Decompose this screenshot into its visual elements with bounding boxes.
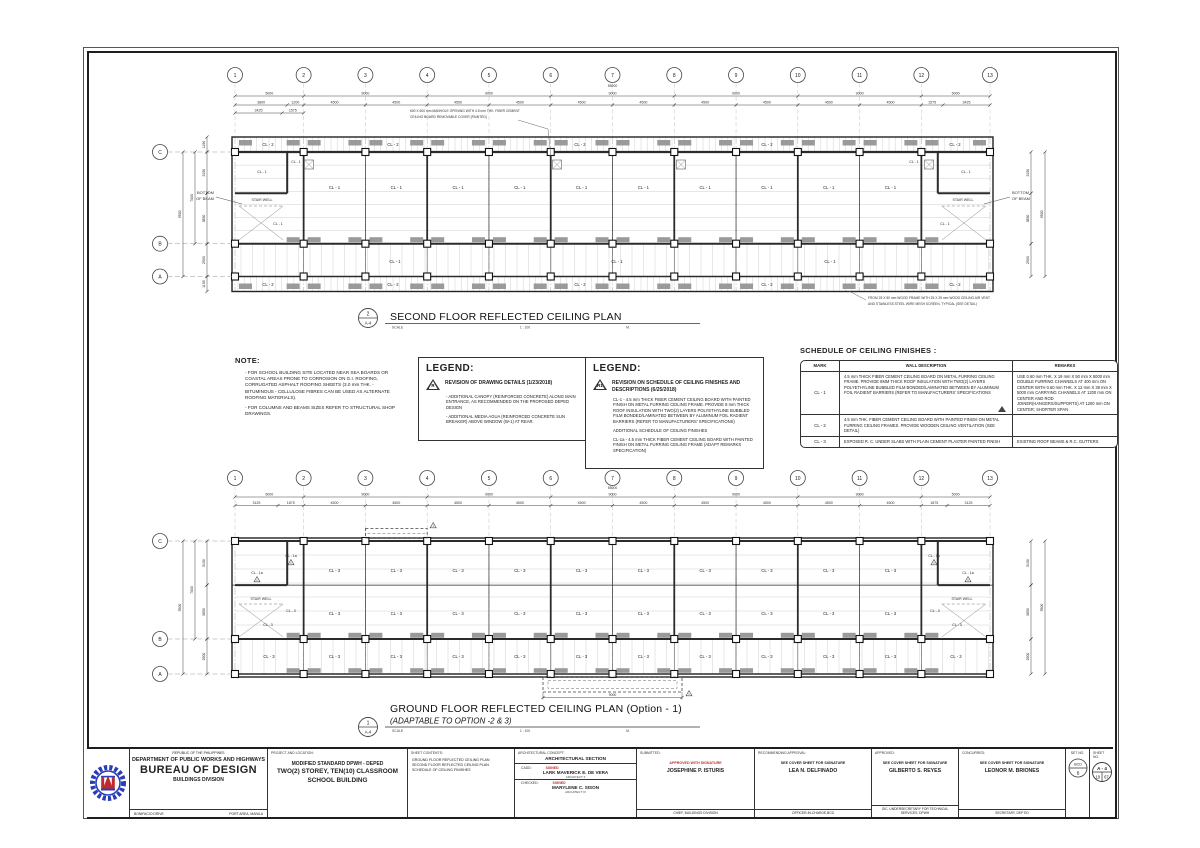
svg-text:3850: 3850 <box>1026 608 1030 616</box>
approved-name: GILBERTO S. REYES <box>872 768 958 774</box>
dpwh-logo-cell <box>87 749 130 817</box>
svg-text:1 : 100: 1 : 100 <box>520 729 530 733</box>
svg-text:BOTTOM: BOTTOM <box>1012 190 1029 195</box>
svg-text:CL - 3: CL - 3 <box>329 568 341 573</box>
svg-text:2500: 2500 <box>202 653 206 661</box>
drawing-sheet: 5500050009000900090009000900050003800120… <box>0 0 1200 848</box>
svg-text:CL - 1: CL - 1 <box>961 170 970 174</box>
legend2-heading: REVISION ON SCHEDULE OF CEILING FINISHES… <box>612 379 756 393</box>
svg-text:4500: 4500 <box>763 100 771 104</box>
svg-text:1150: 1150 <box>202 141 206 149</box>
republic-label: REPUBLIC OF THE PHILIPPINES <box>130 751 267 755</box>
project-line2: TWO(2) STOREY, TEN(10) CLASSROOM <box>268 768 407 775</box>
division-name: BUILDINGS DIVISION <box>130 777 267 783</box>
svg-text:12: 12 <box>919 73 925 79</box>
svg-text:CL - 1: CL - 1 <box>611 259 623 264</box>
svg-text:C: C <box>158 539 162 545</box>
svg-text:CL - 3: CL - 3 <box>700 654 712 659</box>
svg-text:9000: 9000 <box>732 492 740 496</box>
svg-text:CL - 2: CL - 2 <box>949 142 961 147</box>
svg-text:7: 7 <box>611 73 614 79</box>
approved-label: APPROVED: <box>872 749 958 755</box>
svg-text:5: 5 <box>488 476 491 482</box>
svg-text:2: 2 <box>302 476 305 482</box>
svg-text:CL - 1: CL - 1 <box>389 259 401 264</box>
svg-text:BOTTOM: BOTTOM <box>197 190 214 195</box>
svg-text:13: 13 <box>987 476 993 482</box>
sheet-no-cell: SHEET NO. A - 4 19 67 <box>1090 749 1113 817</box>
svg-text:CL - 3: CL - 3 <box>761 611 773 616</box>
department-name: DEPARTMENT OF PUBLIC WORKS AND HIGHWAYS <box>130 757 267 763</box>
list-item: CL-1 - 4.5 mm THICK FIBER CEMENT CEILING… <box>613 397 756 424</box>
svg-text:3125: 3125 <box>252 501 260 505</box>
svg-text:9500: 9500 <box>1040 210 1044 218</box>
svg-text:CL - 3: CL - 3 <box>391 611 403 616</box>
svg-text:1: 1 <box>234 476 237 482</box>
svg-text:CL - 3: CL - 3 <box>761 654 773 659</box>
svg-text:A-4: A-4 <box>365 730 372 735</box>
svg-text:7000: 7000 <box>190 194 194 202</box>
svg-text:B: B <box>1076 770 1079 775</box>
svg-text:CL - 3: CL - 3 <box>950 654 962 659</box>
svg-text:CL - 3: CL - 3 <box>885 654 897 659</box>
svg-text:4500: 4500 <box>454 100 462 104</box>
svg-text:4500: 4500 <box>886 100 894 104</box>
svg-text:9500: 9500 <box>178 210 182 218</box>
svg-text:12: 12 <box>919 476 925 482</box>
submitted-label: SUBMITTED: <box>637 749 754 755</box>
svg-text:8: 8 <box>673 476 676 482</box>
svg-text:9000: 9000 <box>609 492 617 496</box>
title-block: REPUBLIC OF THE PHILIPPINES DEPARTMENT O… <box>87 747 1113 817</box>
svg-text:4500: 4500 <box>701 501 709 505</box>
svg-text:CL - 3: CL - 3 <box>930 609 939 613</box>
svg-text:CL - 3: CL - 3 <box>700 568 712 573</box>
svg-text:CL - 3: CL - 3 <box>700 611 712 616</box>
revision-triangle-icon: R <box>426 379 440 390</box>
legend1-heading: REVISION OF DRAWING DETAILS (1/23/2018) <box>445 379 552 387</box>
svg-text:67: 67 <box>1104 774 1109 779</box>
list-item: - ADDITIONAL MEDIA AGUA (REINFORCED CONC… <box>446 414 578 425</box>
svg-text:55000: 55000 <box>608 486 618 490</box>
ceiling-finish-schedule: SCHEDULE OF CEILING FINISHES : MARKWALL … <box>800 346 1118 448</box>
svg-text:600 X 600 mm MANHOLE OPENING W: 600 X 600 mm MANHOLE OPENING WITH 4.5 mm… <box>410 109 520 113</box>
svg-text:4500: 4500 <box>886 501 894 505</box>
svg-text:CL - 3: CL - 3 <box>823 654 835 659</box>
svg-text:A-4: A-4 <box>365 321 372 326</box>
svg-text:11: 11 <box>857 476 862 482</box>
svg-text:M.: M. <box>626 729 630 733</box>
svg-text:CL - 3: CL - 3 <box>514 611 526 616</box>
svg-text:2500: 2500 <box>1026 256 1030 264</box>
svg-text:9500: 9500 <box>1040 604 1044 612</box>
svg-text:4500: 4500 <box>825 100 833 104</box>
svg-text:3850: 3850 <box>202 215 206 223</box>
svg-text:CL - 1: CL - 1 <box>700 185 712 190</box>
svg-text:CL - 3: CL - 3 <box>823 611 835 616</box>
svg-text:CL - 2: CL - 2 <box>761 142 773 147</box>
svg-text:9000: 9000 <box>609 693 617 697</box>
svg-text:STAIR WELL: STAIR WELL <box>951 597 972 601</box>
svg-text:4500: 4500 <box>331 501 339 505</box>
project-cell: PROJECT AND LOCATION: MODIFIED STANDARD … <box>268 749 408 817</box>
svg-text:CL - 3: CL - 3 <box>263 654 275 659</box>
svg-text:10: 10 <box>795 476 801 482</box>
svg-text:8: 8 <box>673 73 676 79</box>
svg-text:CL - 3: CL - 3 <box>761 568 773 573</box>
svg-text:M.: M. <box>626 326 630 330</box>
svg-text:3150: 3150 <box>1026 559 1030 567</box>
svg-text:3850: 3850 <box>202 608 206 616</box>
project-line1: MODIFIED STANDARD DPWH - DEPED <box>268 761 407 767</box>
svg-text:4500: 4500 <box>516 501 524 505</box>
svg-text:CL - 2: CL - 2 <box>574 282 586 287</box>
svg-text:STAIR WELL: STAIR WELL <box>251 198 272 202</box>
svg-text:CL - 3: CL - 3 <box>329 654 341 659</box>
svg-text:CL - 3: CL - 3 <box>952 623 961 627</box>
svg-text:19: 19 <box>1095 774 1100 779</box>
dpwh-seal-icon <box>89 764 127 802</box>
svg-text:4500: 4500 <box>825 501 833 505</box>
svg-text:4500: 4500 <box>516 100 524 104</box>
svg-text:CL - 3: CL - 3 <box>391 568 403 573</box>
submitted-cell: SUBMITTED: APPROVED WITH SIGNATURE JOSEP… <box>637 749 755 817</box>
svg-text:CL - 3: CL - 3 <box>452 611 464 616</box>
svg-text:AND STAINLESS STEEL WIRE MESH: AND STAINLESS STEEL WIRE MESH SCREEN, TY… <box>868 302 977 306</box>
svg-text:3850: 3850 <box>1026 215 1030 223</box>
svg-text:CL - 1: CL - 1 <box>391 185 403 190</box>
svg-text:CL - 1: CL - 1 <box>576 185 588 190</box>
list-item: ADDITIONAL SCHEDULE OF CEILING FINISHES <box>613 428 756 433</box>
svg-text:9000: 9000 <box>732 91 740 95</box>
set-no-cell: SET NO. BCD B <box>1066 749 1090 817</box>
checked-label: CHECKED: <box>518 780 542 786</box>
address-right: PORT AREA, MANILA <box>229 812 263 816</box>
project-line3: SCHOOL BUILDING <box>268 777 407 784</box>
svg-text:2500: 2500 <box>1026 653 1030 661</box>
svg-text:CL - 3: CL - 3 <box>452 568 464 573</box>
svg-text:CL - 3: CL - 3 <box>885 611 897 616</box>
concurred-label: CONCURRED: <box>959 749 1065 755</box>
svg-text:(ADAPTABLE TO OPTION -2 & 3): (ADAPTABLE TO OPTION -2 & 3) <box>390 717 512 726</box>
recommending-note: SEE COVER SHEET FOR SIGNATURE <box>755 761 871 765</box>
svg-text:9000: 9000 <box>856 91 864 95</box>
svg-text:55000: 55000 <box>608 84 618 88</box>
svg-text:SECOND FLOOR REFLECTED CEILING: SECOND FLOOR REFLECTED CEILING PLAN <box>390 311 622 323</box>
svg-text:CL - 3: CL - 3 <box>638 568 650 573</box>
svg-text:CL - 1: CL - 1 <box>514 185 526 190</box>
recommending-label: RECOMMENDING APPROVAL: <box>755 749 871 755</box>
svg-text:CEILING BOARD REMOVABLE COVER: CEILING BOARD REMOVABLE COVER (PAINTED) <box>410 115 487 119</box>
arch-concept-value: ARCHITECTURAL SECTION <box>515 755 636 764</box>
svg-text:CL - 1: CL - 1 <box>329 185 341 190</box>
svg-text:CL - 3: CL - 3 <box>452 654 464 659</box>
svg-text:CL - 2: CL - 2 <box>387 282 399 287</box>
svg-text:CL - 3: CL - 3 <box>638 654 650 659</box>
svg-text:CL - 3: CL - 3 <box>514 654 526 659</box>
svg-text:1 : 100: 1 : 100 <box>520 326 530 330</box>
project-label: PROJECT AND LOCATION: <box>268 749 407 755</box>
svg-text:BCD: BCD <box>1074 762 1082 766</box>
bureau-name: BUREAU OF DESIGN <box>130 764 267 776</box>
svg-text:C: C <box>158 150 162 156</box>
svg-text:CL - 2: CL - 2 <box>574 142 586 147</box>
legend2-items: CL-1 - 4.5 mm THICK FIBER CEMENT CEILING… <box>593 397 756 453</box>
concurred-name: LEONOR M. BRIONES <box>959 768 1065 774</box>
note-title: NOTE: <box>235 356 395 365</box>
schedule-row: CL - 24.5 mm THK. FIBER CEMENT CEILING B… <box>801 414 1117 436</box>
svg-text:9000: 9000 <box>485 492 493 496</box>
svg-text:3425: 3425 <box>962 100 970 104</box>
revision-triangle-icon <box>998 406 1006 412</box>
legend1-title: LEGEND: <box>426 363 578 374</box>
cadd-label: CADD: <box>518 764 535 770</box>
svg-text:1200: 1200 <box>291 100 299 104</box>
schedule-row: CL - 14.5 mm THICK FIBER CEMENT CEILING … <box>801 371 1117 415</box>
note-block: NOTE: - FOR SCHOOL BUILDING SITE LOCATED… <box>235 356 395 421</box>
svg-text:5000: 5000 <box>952 91 960 95</box>
legend1-items: - ADDITIONAL CANOPY (REINFORCED CONCRETE… <box>426 394 578 425</box>
svg-text:CL - 2: CL - 2 <box>262 282 274 287</box>
second-floor-plan: 5500050009000900090009000900050003800120… <box>153 68 1047 330</box>
svg-text:CL - 3: CL - 3 <box>514 568 526 573</box>
sheet-no-circle: A - 4 19 67 <box>1091 759 1113 785</box>
svg-text:CL - 1a: CL - 1a <box>285 554 296 558</box>
svg-text:CL - 1: CL - 1 <box>940 222 949 226</box>
svg-text:CL - 3: CL - 3 <box>576 611 588 616</box>
svg-text:9: 9 <box>735 476 738 482</box>
svg-text:CL - 3: CL - 3 <box>286 609 295 613</box>
svg-text:CL - 1: CL - 1 <box>452 185 464 190</box>
set-no-circle: BCD B <box>1067 755 1089 781</box>
svg-text:OF BEAM: OF BEAM <box>1012 196 1030 201</box>
svg-text:1575: 1575 <box>928 100 936 104</box>
list-item: - FOR SCHOOL BUILDING SITE LOCATED NEAR … <box>245 370 395 401</box>
svg-text:CL - 1a: CL - 1a <box>962 571 973 575</box>
svg-text:1875: 1875 <box>930 501 938 505</box>
svg-text:5000: 5000 <box>265 492 273 496</box>
svg-text:CL - 3: CL - 3 <box>391 654 403 659</box>
list-item: - FOR COLUMNS AND BEAMS SIZES REFER TO S… <box>245 405 395 417</box>
svg-text:CL - 3: CL - 3 <box>638 611 650 616</box>
schedule-header-row: MARKWALL DESCRIPTIONREMARKS <box>801 361 1117 371</box>
svg-text:4500: 4500 <box>392 501 400 505</box>
svg-text:CL - 2: CL - 2 <box>949 282 961 287</box>
svg-text:CL - 1: CL - 1 <box>291 160 300 164</box>
svg-text:2: 2 <box>367 312 370 318</box>
svg-text:3425: 3425 <box>255 108 263 112</box>
svg-text:3150: 3150 <box>202 169 206 177</box>
svg-text:4500: 4500 <box>331 100 339 104</box>
svg-text:CL - 1: CL - 1 <box>885 185 897 190</box>
svg-text:1: 1 <box>234 73 237 79</box>
svg-text:CL - 3: CL - 3 <box>823 568 835 573</box>
list-item: CL-1a - 4.5 mm THICK FIBER CEMENT CEILIN… <box>613 437 756 453</box>
svg-text:CL - 2: CL - 2 <box>761 282 773 287</box>
contents-list: GROUND FLOOR REFLECTED CEILING PLANSECON… <box>408 755 514 774</box>
svg-text:13: 13 <box>987 73 993 79</box>
svg-text:1575: 1575 <box>289 108 297 112</box>
svg-text:CL - 1: CL - 1 <box>761 185 773 190</box>
cadd-signed: SIGNED <box>543 764 562 770</box>
list-item: SCHEDULE OF CEILING FINISHES <box>412 768 510 773</box>
svg-text:CL - 3: CL - 3 <box>263 623 272 627</box>
svg-text:1150: 1150 <box>202 280 206 288</box>
svg-text:4500: 4500 <box>639 501 647 505</box>
svg-text:9000: 9000 <box>485 91 493 95</box>
svg-text:CL - 2: CL - 2 <box>387 142 399 147</box>
recommending-name: LEA N. DELFINADO <box>755 768 871 774</box>
legend-revision-drawing: LEGEND: R REVISION OF DRAWING DETAILS (1… <box>418 357 586 441</box>
svg-text:3800: 3800 <box>257 100 265 104</box>
schedule-table: MARKWALL DESCRIPTIONREMARKSCL - 14.5 mm … <box>800 360 1118 448</box>
address-left: BONIFACIO DRIVE <box>134 812 164 816</box>
department-cell: REPUBLIC OF THE PHILIPPINES DEPARTMENT O… <box>130 749 268 817</box>
svg-text:5000: 5000 <box>265 91 273 95</box>
submitted-role: CHIEF, BUILDINGS DIVISION <box>637 809 754 817</box>
svg-text:STAIR WELL: STAIR WELL <box>250 597 271 601</box>
note-items: - FOR SCHOOL BUILDING SITE LOCATED NEAR … <box>235 370 395 417</box>
svg-text:CL - 3: CL - 3 <box>576 568 588 573</box>
svg-text:1875: 1875 <box>287 501 295 505</box>
schedule-title: SCHEDULE OF CEILING FINISHES : <box>800 346 1118 355</box>
svg-text:CL - 1a: CL - 1a <box>251 571 262 575</box>
submitted-name: JOSEPHINE P. ISTURIS <box>637 768 754 774</box>
cadd-title: ARCHITECT II <box>515 775 636 779</box>
concurred-role: SECRETARY, DEP ED <box>959 809 1065 817</box>
svg-text:4500: 4500 <box>578 100 586 104</box>
svg-text:CL - 1: CL - 1 <box>273 222 282 226</box>
legend2-title: LEGEND: <box>593 363 756 374</box>
svg-text:9000: 9000 <box>856 492 864 496</box>
svg-text:3125: 3125 <box>965 501 973 505</box>
svg-text:CL - 3: CL - 3 <box>885 568 897 573</box>
svg-text:6: 6 <box>549 73 552 79</box>
svg-text:CL - 3: CL - 3 <box>576 654 588 659</box>
svg-text:10: 10 <box>795 73 801 79</box>
svg-text:CL - 1: CL - 1 <box>824 259 836 264</box>
svg-text:3150: 3150 <box>1026 169 1030 177</box>
svg-text:11: 11 <box>857 73 862 79</box>
svg-text:CL - 1a: CL - 1a <box>928 554 939 558</box>
checked-title: ARCHITECT IV <box>515 790 636 794</box>
approved-cell: APPROVED: SEE COVER SHEET FOR SIGNATURE … <box>872 749 959 817</box>
recommending-role: OFFICER-IN-CHARGE,BCD <box>755 809 871 817</box>
svg-text:4500: 4500 <box>763 501 771 505</box>
revision-triangle-icon: R1 <box>593 379 607 390</box>
submitted-note: APPROVED WITH SIGNATURE <box>637 761 754 765</box>
svg-text:CL - 1: CL - 1 <box>638 185 650 190</box>
svg-text:CL - 2: CL - 2 <box>262 142 274 147</box>
svg-text:CL - 1: CL - 1 <box>257 170 266 174</box>
approved-note: SEE COVER SHEET FOR SIGNATURE <box>872 761 958 765</box>
svg-text:5000: 5000 <box>952 492 960 496</box>
svg-text:4500: 4500 <box>454 501 462 505</box>
svg-text:3: 3 <box>364 73 367 79</box>
sheet-contents-cell: SHEET CONTENTS: GROUND FLOOR REFLECTED C… <box>408 749 515 817</box>
svg-text:SCALE: SCALE <box>392 326 404 330</box>
svg-text:2500: 2500 <box>202 256 206 264</box>
svg-text:4: 4 <box>426 476 429 482</box>
ground-floor-plan: 5500050009000900090009000900050003125187… <box>153 471 1047 737</box>
svg-text:7000: 7000 <box>190 586 194 594</box>
svg-text:STAIR WELL: STAIR WELL <box>952 198 973 202</box>
svg-text:CL - 3: CL - 3 <box>329 611 341 616</box>
svg-text:4500: 4500 <box>701 100 709 104</box>
svg-text:1: 1 <box>367 721 370 727</box>
svg-text:2: 2 <box>302 73 305 79</box>
approved-role: OIC, UNDERSECRETARY FOR TECHNICAL SERVIC… <box>872 805 958 817</box>
svg-text:CL - 1: CL - 1 <box>909 160 918 164</box>
concurred-cell: CONCURRED: SEE COVER SHEET FOR SIGNATURE… <box>959 749 1066 817</box>
svg-text:3150: 3150 <box>202 559 206 567</box>
svg-text:9000: 9000 <box>361 492 369 496</box>
architectural-cell: ARCHITECTURAL CONCEPT: ARCHITECTURAL SEC… <box>515 749 637 817</box>
svg-text:FROM 25 X 50 mm WOOD FRAME WIT: FROM 25 X 50 mm WOOD FRAME WITH 25 X 25 … <box>868 296 990 300</box>
svg-text:GROUND FLOOR REFLECTED CEILING: GROUND FLOOR REFLECTED CEILING PLAN (Opt… <box>390 703 682 715</box>
svg-text:9: 9 <box>735 73 738 79</box>
svg-text:9000: 9000 <box>609 91 617 95</box>
svg-text:7: 7 <box>611 476 614 482</box>
svg-text:3: 3 <box>364 476 367 482</box>
svg-text:4500: 4500 <box>578 501 586 505</box>
sheet-no-label: SHEET NO. <box>1090 749 1113 759</box>
concurred-note: SEE COVER SHEET FOR SIGNATURE <box>959 761 1065 765</box>
list-item: - ADDITIONAL CANOPY (REINFORCED CONCRETE… <box>446 394 578 410</box>
svg-text:SCALE: SCALE <box>392 729 404 733</box>
svg-text:9500: 9500 <box>178 604 182 612</box>
svg-text:OF BEAM: OF BEAM <box>196 196 214 201</box>
svg-text:4: 4 <box>426 73 429 79</box>
svg-text:6: 6 <box>549 476 552 482</box>
svg-text:CL - 1: CL - 1 <box>823 185 835 190</box>
svg-text:5: 5 <box>488 73 491 79</box>
legend-revision-schedule: LEGEND: R1 REVISION ON SCHEDULE OF CEILI… <box>585 357 764 469</box>
svg-text:4500: 4500 <box>392 100 400 104</box>
recommending-cell: RECOMMENDING APPROVAL: SEE COVER SHEET F… <box>755 749 872 817</box>
svg-text:A - 4: A - 4 <box>1097 765 1107 770</box>
svg-text:4500: 4500 <box>639 100 647 104</box>
svg-text:9000: 9000 <box>361 91 369 95</box>
schedule-row: CL - 3EXPOSED R. C. UNDER SLABS WITH PLA… <box>801 436 1117 447</box>
